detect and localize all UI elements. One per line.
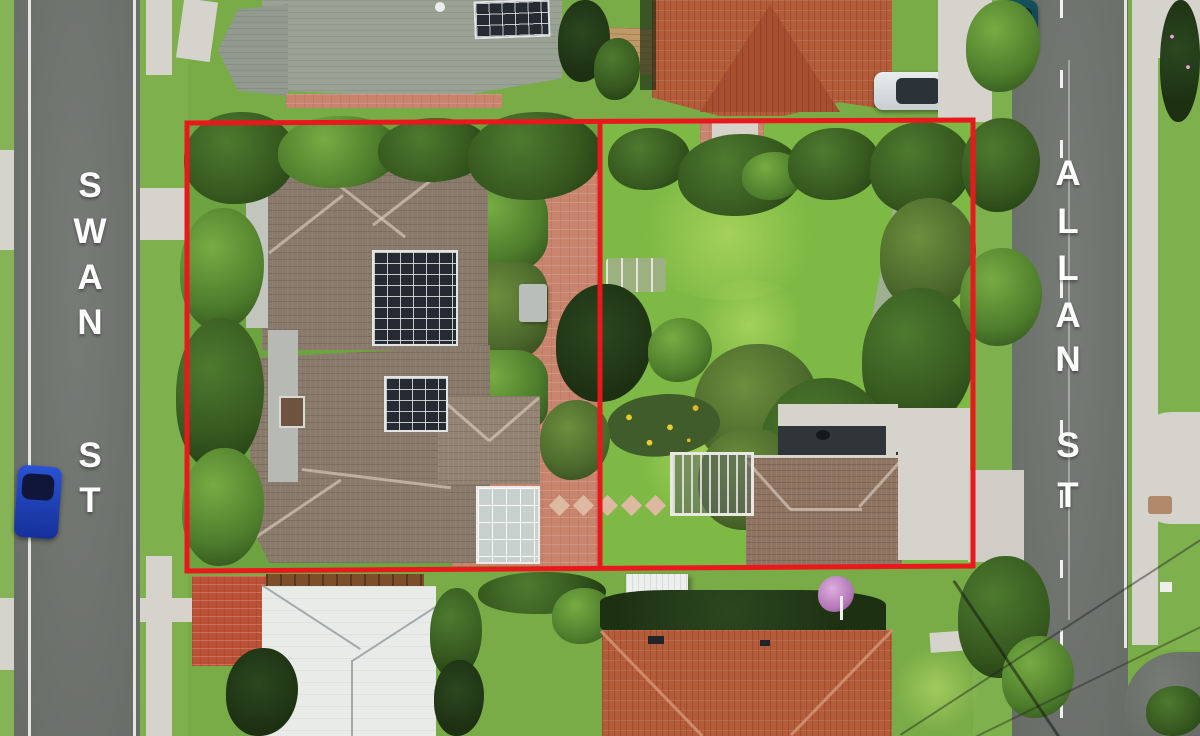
- swan-st-letter: S: [68, 168, 112, 203]
- allan-st-letter: N: [1046, 342, 1090, 377]
- allan-st-letter: A: [1046, 298, 1090, 333]
- swan-st-letter: W: [68, 214, 112, 249]
- swan-st-letter: N: [68, 305, 112, 340]
- allan-st-letter: L: [1046, 251, 1090, 286]
- allan-st-letter: T: [1046, 478, 1090, 513]
- swan-st-letter: A: [68, 260, 112, 295]
- allan-st-letter: S: [1046, 428, 1090, 463]
- property-boundary-overlay: [0, 0, 1200, 736]
- swan-st-letter: S: [68, 438, 112, 473]
- allan-st-letter: A: [1046, 156, 1090, 191]
- boundary-outline: [187, 120, 973, 571]
- swan-st-letter: T: [68, 483, 112, 518]
- allan-st-letter: L: [1046, 204, 1090, 239]
- aerial-photo: S W A N S T A L L A N S T: [0, 0, 1200, 736]
